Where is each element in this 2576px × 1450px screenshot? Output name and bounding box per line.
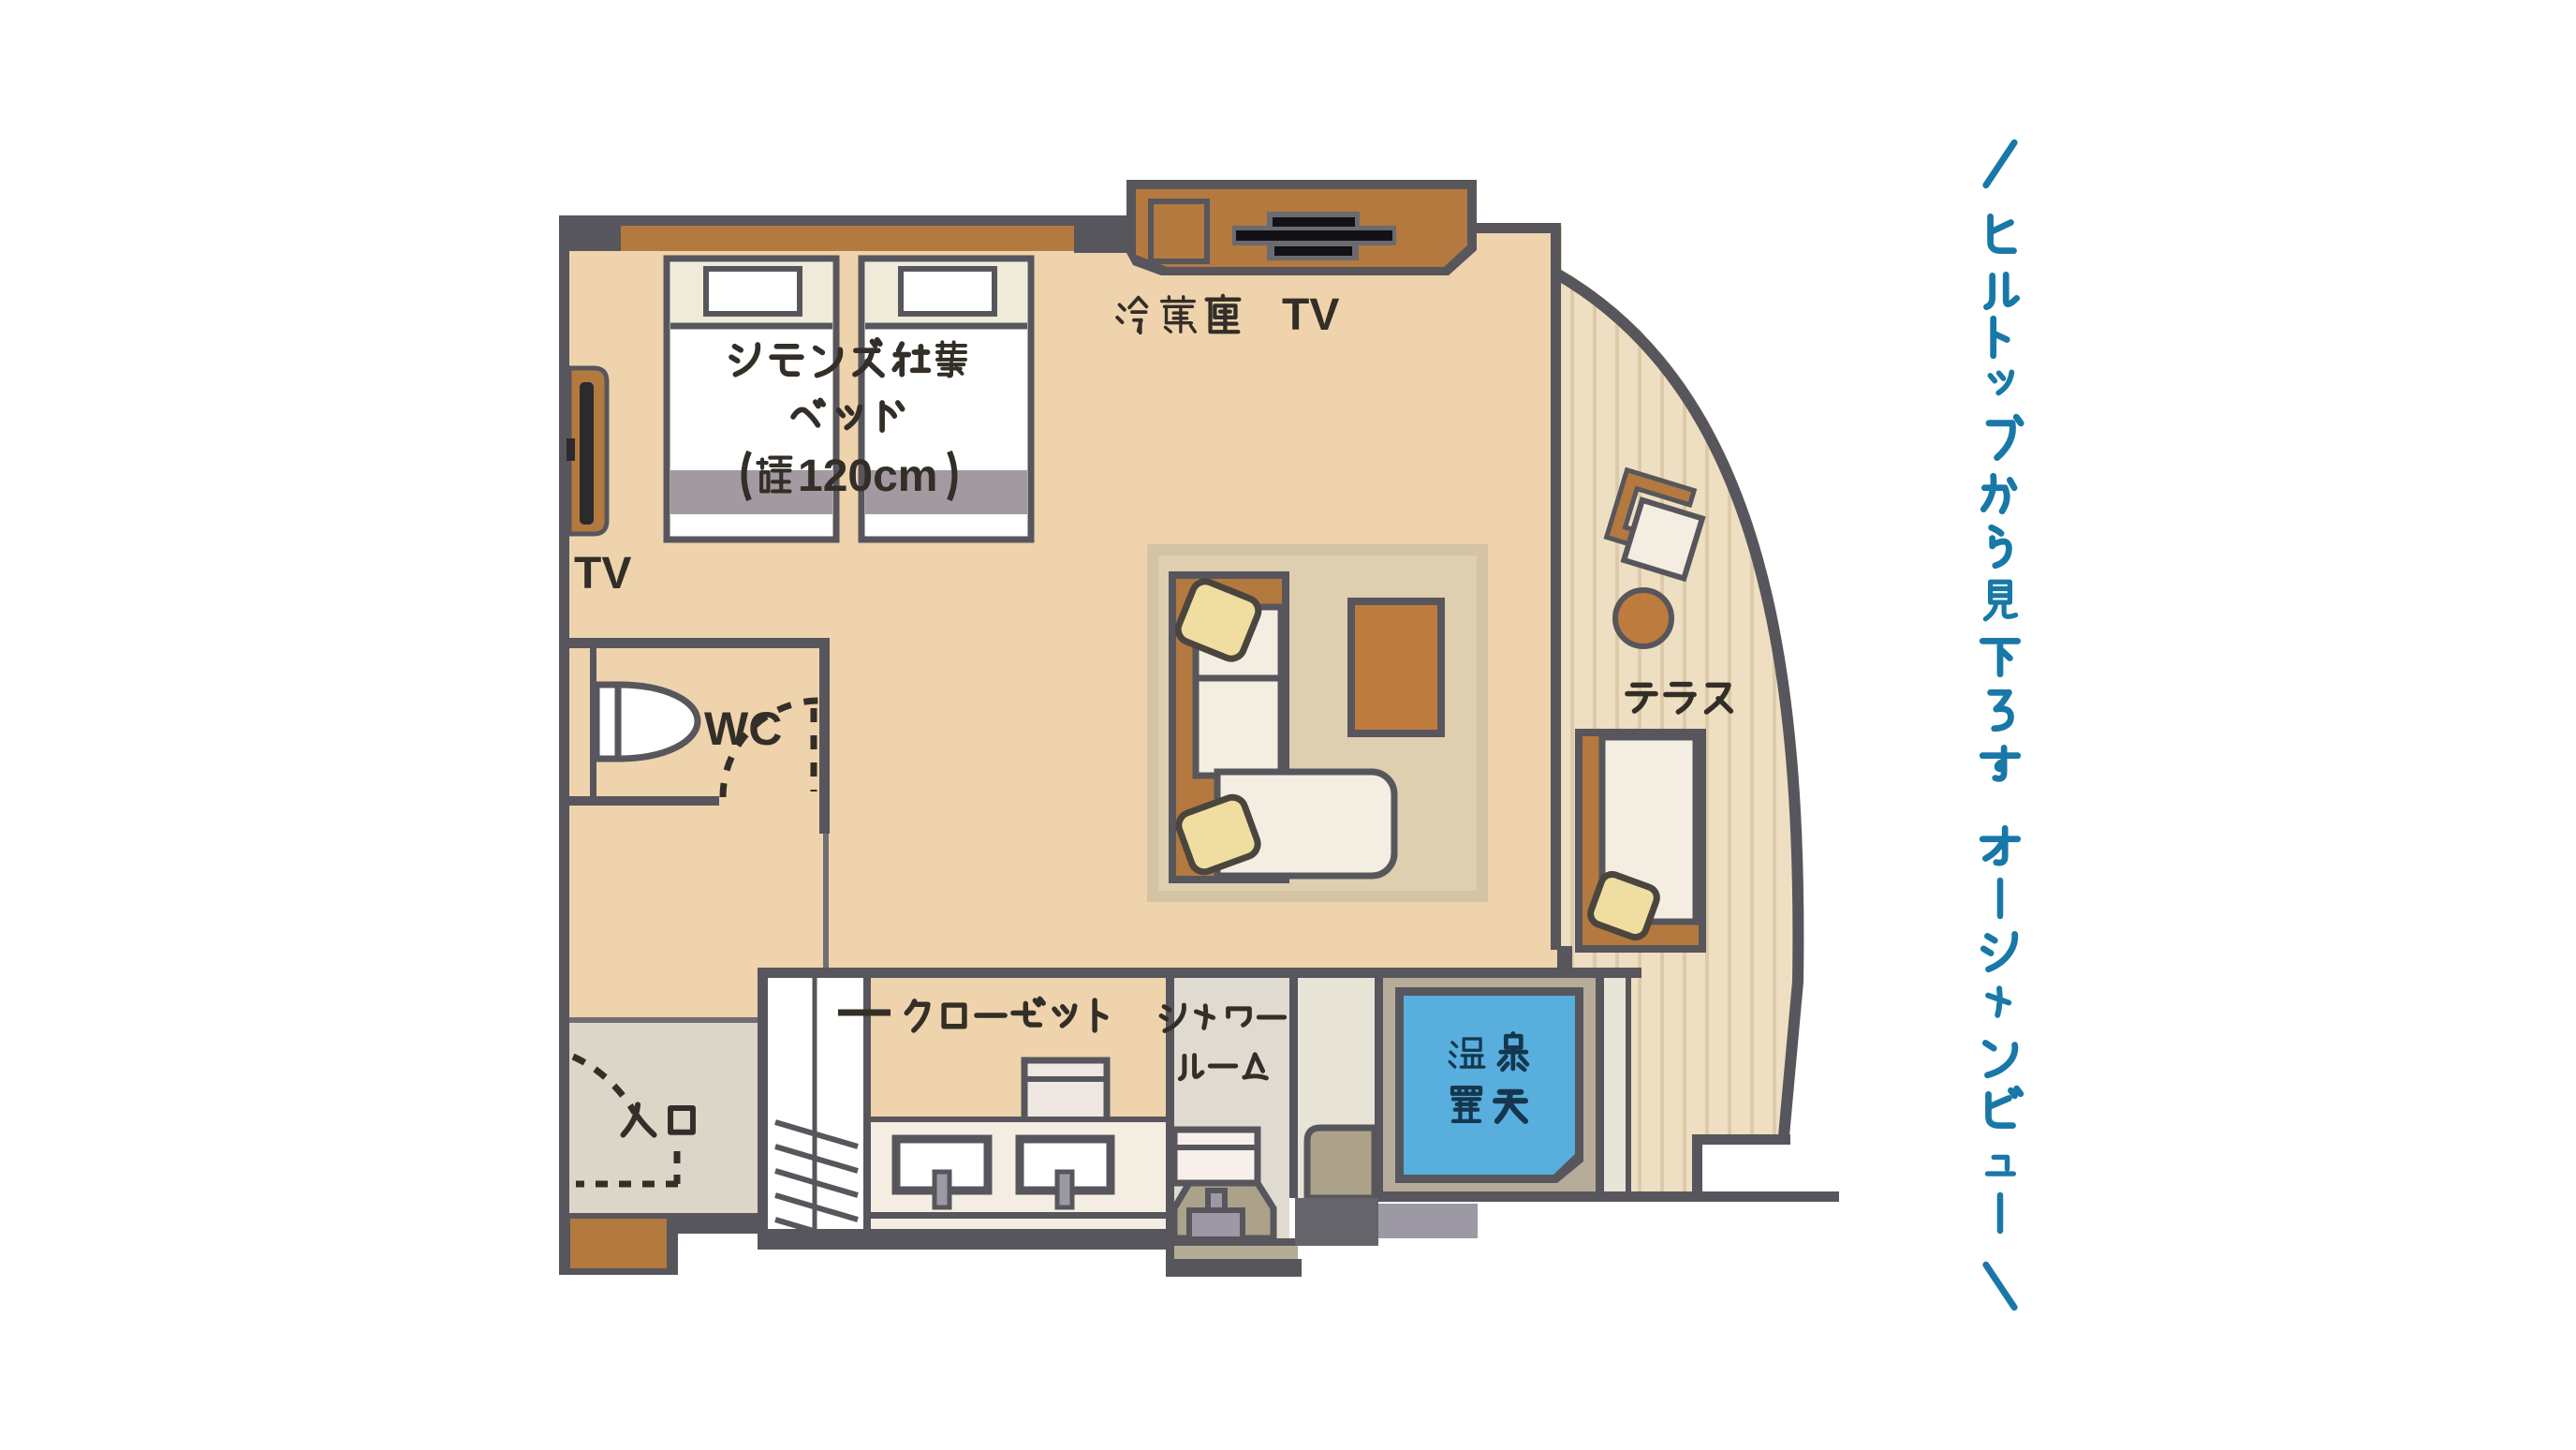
svg-text:TV: TV — [574, 549, 631, 599]
svg-text:TV: TV — [1282, 290, 1339, 340]
svg-text:120cm: 120cm — [798, 451, 937, 501]
svg-text:WC: WC — [704, 703, 782, 755]
